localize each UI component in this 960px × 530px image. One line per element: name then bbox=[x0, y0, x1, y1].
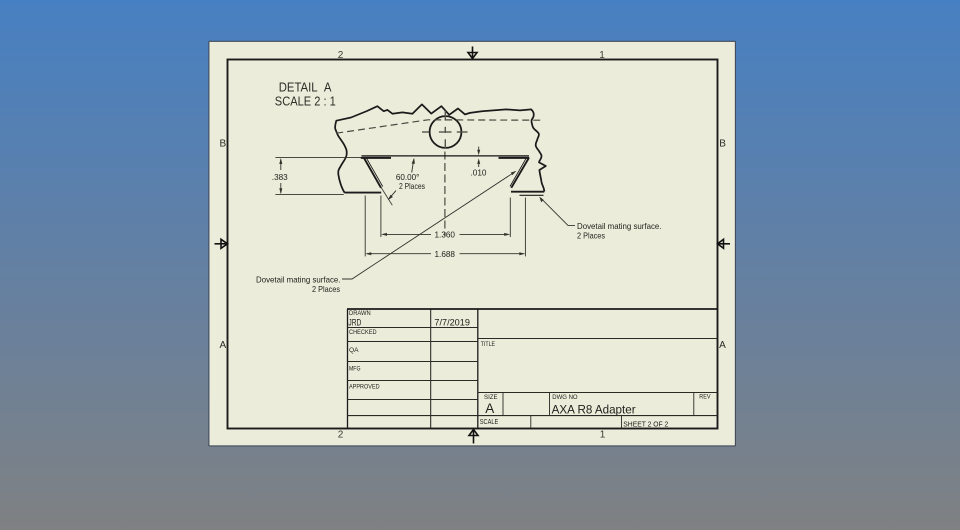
svg-text:REV: REV bbox=[699, 394, 711, 401]
svg-text:A: A bbox=[485, 401, 494, 416]
svg-text:AXA R8 Adapter: AXA R8 Adapter bbox=[552, 402, 636, 416]
svg-text:DETAIL A: DETAIL A bbox=[279, 80, 332, 95]
svg-text:.383: .383 bbox=[272, 173, 288, 182]
svg-text:1.688: 1.688 bbox=[435, 250, 456, 259]
svg-text:2: 2 bbox=[338, 430, 344, 441]
svg-text:JRD: JRD bbox=[348, 317, 361, 327]
svg-text:Dovetail mating surface.: Dovetail mating surface. bbox=[577, 222, 662, 231]
svg-text:QA: QA bbox=[349, 347, 359, 354]
svg-text:7/7/2019: 7/7/2019 bbox=[434, 318, 470, 328]
svg-text:60.00°: 60.00° bbox=[396, 173, 420, 182]
svg-text:2: 2 bbox=[338, 50, 344, 61]
svg-text:B: B bbox=[719, 139, 726, 150]
svg-text:2 Places: 2 Places bbox=[399, 182, 425, 191]
svg-text:1: 1 bbox=[599, 50, 605, 61]
svg-text:CHECKED: CHECKED bbox=[349, 329, 377, 336]
svg-text:APPROVED: APPROVED bbox=[349, 383, 380, 390]
svg-text:1: 1 bbox=[600, 430, 606, 441]
svg-text:DRAWN: DRAWN bbox=[349, 310, 371, 317]
svg-text:A: A bbox=[719, 340, 726, 351]
svg-text:Dovetail mating surface.: Dovetail mating surface. bbox=[256, 275, 341, 284]
svg-text:MFG: MFG bbox=[349, 365, 361, 372]
svg-text:TITLE: TITLE bbox=[481, 341, 496, 348]
svg-text:A: A bbox=[219, 340, 226, 351]
svg-text:SCALE: SCALE bbox=[480, 417, 499, 426]
svg-text:SCALE 2 : 1: SCALE 2 : 1 bbox=[275, 94, 336, 109]
svg-text:2 Places: 2 Places bbox=[577, 232, 605, 241]
svg-text:1.360: 1.360 bbox=[435, 231, 456, 240]
svg-text:2 Places: 2 Places bbox=[312, 285, 340, 294]
svg-text:.010: .010 bbox=[471, 168, 487, 177]
svg-text:SHEET 2 OF 2: SHEET 2 OF 2 bbox=[623, 420, 668, 429]
svg-text:DWG NO: DWG NO bbox=[552, 394, 577, 401]
svg-text:B: B bbox=[219, 139, 226, 150]
svg-text:SIZE: SIZE bbox=[484, 394, 498, 401]
